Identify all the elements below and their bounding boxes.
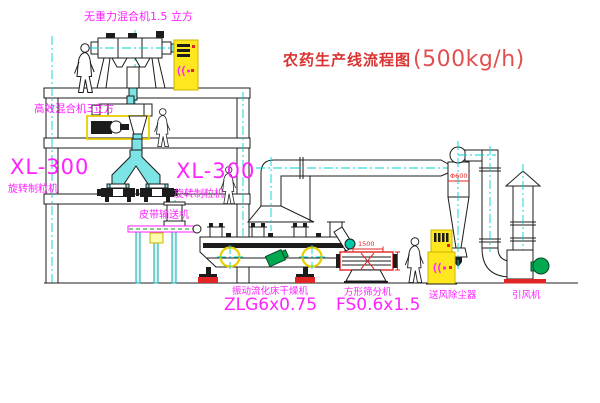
y-distributor-pipe (112, 150, 160, 184)
label-sifter-length: 1500 (358, 241, 375, 248)
label-granulator-left-model: XL-300 (10, 157, 89, 178)
diagram-title: 农药生产线流程图 (500kg/h) (283, 47, 525, 72)
dryer-hood (248, 206, 314, 222)
label-cyclone-diameter: Φ600 (450, 173, 468, 180)
square-sifter (334, 227, 400, 284)
label-dryer-model: ZLG6x0.75 (224, 297, 317, 314)
control-cabinet-bottom (426, 230, 457, 284)
fan-motor (533, 258, 549, 274)
cyclone-separator (448, 141, 511, 277)
label-gravity-mixer: 无重力混合机1.5 立方 (84, 11, 193, 22)
person-figure-4 (405, 238, 423, 283)
label-granulator-left-name: 旋转制粒机 (8, 185, 58, 195)
label-sifter-model: FS0.6x1.5 (336, 297, 420, 314)
control-cabinet-top (174, 40, 198, 90)
induced-draft-fan (504, 250, 549, 284)
fluid-bed-dryer (198, 222, 345, 283)
flow-diagram: 农药生产线流程图 (500kg/h) 无重力混合机1.5 立方 高效混合机3立方… (0, 0, 600, 403)
label-high-eff-mixer: 高效混合机3立方 (34, 104, 114, 115)
label-belt-conveyor: 皮带输送机 (139, 211, 189, 221)
fan-base (504, 279, 546, 284)
title-capacity: (500kg/h) (413, 47, 525, 72)
feeder-box (150, 233, 163, 243)
exhaust-duct (248, 157, 470, 231)
label-induced-fan: 引风机 (512, 291, 541, 301)
label-granulator-mid-name: 旋转制粒机 (174, 190, 224, 200)
conveyor-pulley (193, 225, 201, 233)
label-granulator-mid-model: XL-300 (176, 161, 255, 182)
label-dust-collector: 送风除尘器 (429, 291, 477, 301)
title-text: 农药生产线流程图 (283, 49, 411, 70)
belt-conveyor (128, 225, 201, 283)
